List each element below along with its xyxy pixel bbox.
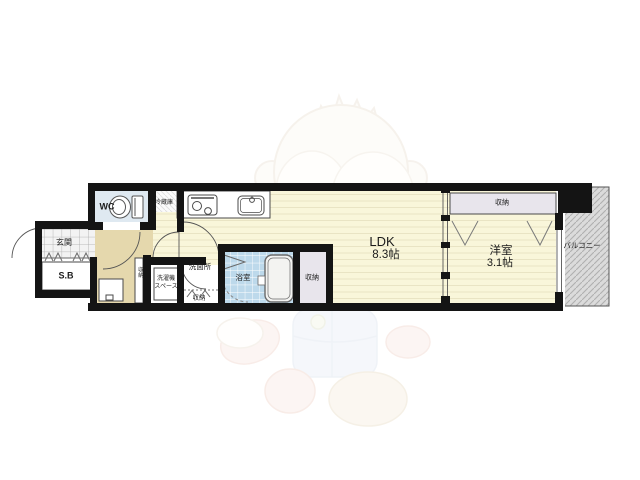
- wall-wc-bottom-a: [88, 222, 103, 230]
- entrance-label: 玄関: [56, 239, 72, 247]
- partition-post: [441, 183, 450, 193]
- wc-label: WC: [100, 202, 115, 211]
- balcony-window: [557, 230, 562, 292]
- wall-corner-block: [558, 183, 592, 213]
- wall-entrance-bottom: [35, 290, 92, 298]
- bath-label: 浴室: [236, 274, 251, 282]
- fridge-label: 冷蔵庫: [155, 200, 173, 206]
- laundry-label-2: スペース: [154, 284, 177, 290]
- toilet-icon: [110, 196, 144, 218]
- wall-laundry-north: [148, 257, 181, 265]
- partition-post: [441, 272, 450, 279]
- wall-bath-north: [218, 244, 333, 252]
- bathside-closet-label: 収納: [305, 274, 319, 281]
- floor-plan-drawing: [0, 0, 640, 480]
- ldk-label: LDK: [369, 235, 394, 249]
- partition-post: [441, 242, 450, 248]
- ldk-size-label: 8.3帖: [372, 249, 400, 261]
- hall-cabinet-outline: [99, 279, 123, 301]
- wall-bottom: [88, 303, 563, 311]
- hallway-floor-upper: [95, 230, 153, 258]
- wall-window-post-bottom: [555, 292, 563, 304]
- bedroom-closet-label: 収納: [495, 199, 509, 206]
- partition-post: [441, 296, 450, 304]
- wall-bath-east: [293, 244, 300, 303]
- washroom-label: 洗面所: [189, 263, 212, 271]
- wall-closet-east: [326, 244, 333, 303]
- wall-entrance-left: [35, 221, 42, 298]
- laundry-label-1: 洗濯機: [157, 276, 175, 282]
- wall-kitchen-side: [177, 183, 184, 232]
- partition-post: [441, 215, 450, 221]
- bedroom-label: 洋室: [490, 245, 513, 257]
- wall-bath-west: [218, 244, 225, 303]
- balcony-label: バルコニー: [563, 242, 600, 250]
- wall-entrance-top: [35, 221, 95, 229]
- wall-wc-bottom-b: [140, 222, 156, 230]
- washroom-closet-label: 収納: [193, 296, 206, 303]
- floor-plan-page: WC 玄関 S.B 冷蔵庫 洗面所 洗濯機 スペース 収納 収納 浴室 収納 L…: [0, 0, 640, 480]
- hall-closet-label: 収納: [136, 267, 142, 278]
- bedroom-size-label: 3.1帖: [487, 258, 513, 270]
- kitchen-counter: [177, 191, 270, 218]
- shoebox-label: S.B: [58, 271, 73, 280]
- wall-top: [88, 183, 563, 191]
- hall-closet-outline: [135, 258, 143, 303]
- wall-window-post-top: [555, 213, 563, 230]
